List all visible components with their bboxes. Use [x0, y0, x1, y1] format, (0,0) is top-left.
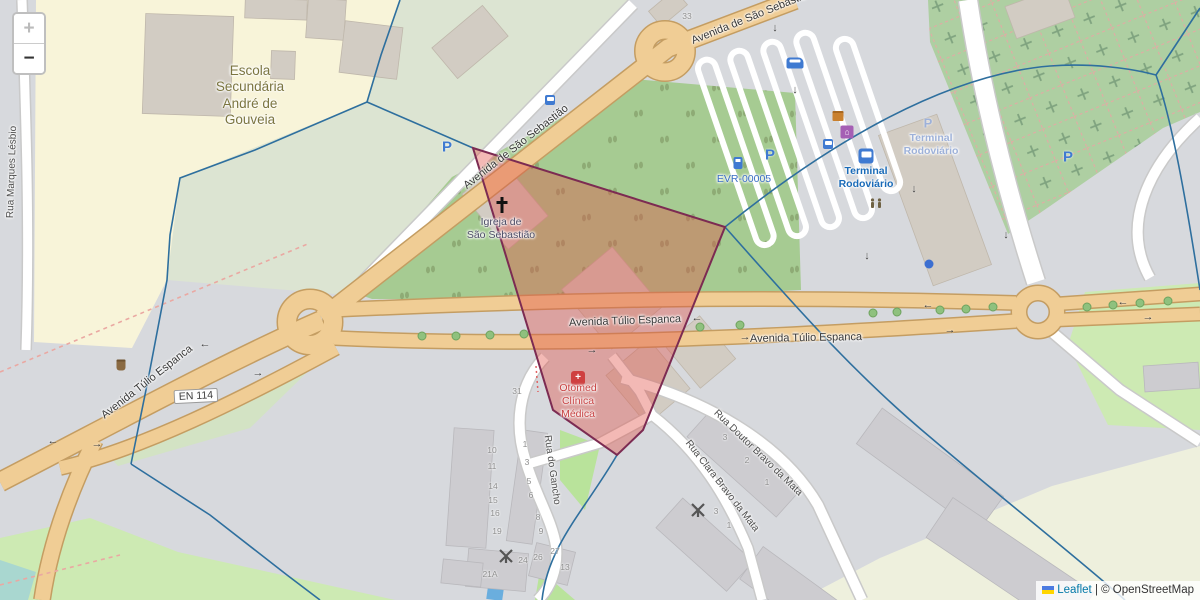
attribution-separator: |	[1095, 584, 1098, 596]
median-tree-icon	[869, 309, 877, 317]
zoom-in-button[interactable]: +	[14, 14, 44, 44]
median-tree-icon	[1136, 299, 1144, 307]
median-tree-icon	[418, 332, 426, 340]
parking-icon-2: P	[765, 147, 775, 164]
waste-basket-icon	[117, 360, 126, 371]
median-tree-icon	[1083, 303, 1091, 311]
median-tree-icon	[486, 331, 494, 339]
attribution-bar: Leaflet | © OpenStreetMap	[1036, 581, 1200, 600]
median-tree-icon	[696, 323, 704, 331]
clinic-icon: +	[571, 371, 585, 385]
bus-stop-icon-1	[545, 95, 555, 105]
bus-stop-icon-2	[823, 139, 833, 149]
church-cross-icon	[496, 197, 509, 213]
median-tree-icon	[936, 306, 944, 314]
bus-terminal-icon	[859, 149, 874, 164]
map-base-layer	[0, 0, 1200, 600]
parking-icon-1: P	[442, 139, 452, 156]
median-tree-icon	[736, 321, 744, 329]
median-tree-icon	[1109, 301, 1117, 309]
zoom-control: + −	[12, 12, 46, 75]
median-tree-icon	[1164, 297, 1172, 305]
road-shield-en114: EN 114	[174, 388, 219, 404]
median-tree-icon	[452, 332, 460, 340]
fuel-station-icon	[734, 157, 743, 169]
parking-icon-3: P	[1063, 149, 1073, 166]
zoom-out-button[interactable]: −	[14, 44, 44, 73]
poi-dot-icon	[925, 260, 934, 269]
osm-copyright-link[interactable]: © OpenStreetMap	[1101, 584, 1194, 596]
parking-icon-terminal: P	[924, 116, 933, 131]
kiosk-icon	[833, 111, 844, 121]
arts-centre-icon: ⌂	[841, 126, 854, 139]
median-tree-icon	[520, 330, 528, 338]
leaflet-link[interactable]: Leaflet	[1057, 584, 1092, 596]
car-rental-icon	[787, 58, 804, 69]
median-tree-icon	[962, 305, 970, 313]
median-tree-icon	[989, 303, 997, 311]
leaflet-map-canvas[interactable]: Avenida de São Sebastião Avenida de São …	[0, 0, 1200, 600]
ukraine-flag-icon	[1042, 586, 1054, 594]
median-tree-icon	[893, 308, 901, 316]
